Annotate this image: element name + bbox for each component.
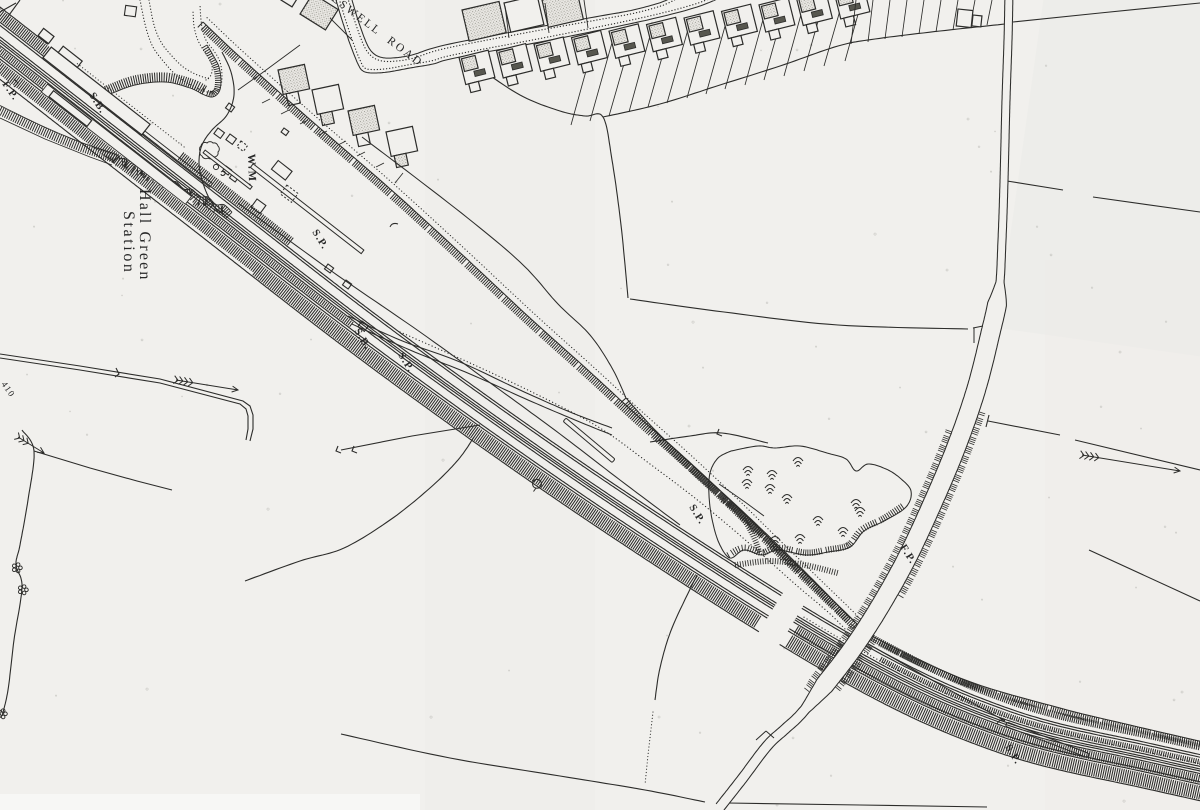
svg-text:W.M.: W.M. [245, 154, 258, 188]
svg-text:Station: Station [120, 211, 137, 275]
svg-text:Hall Green: Hall Green [136, 189, 153, 282]
